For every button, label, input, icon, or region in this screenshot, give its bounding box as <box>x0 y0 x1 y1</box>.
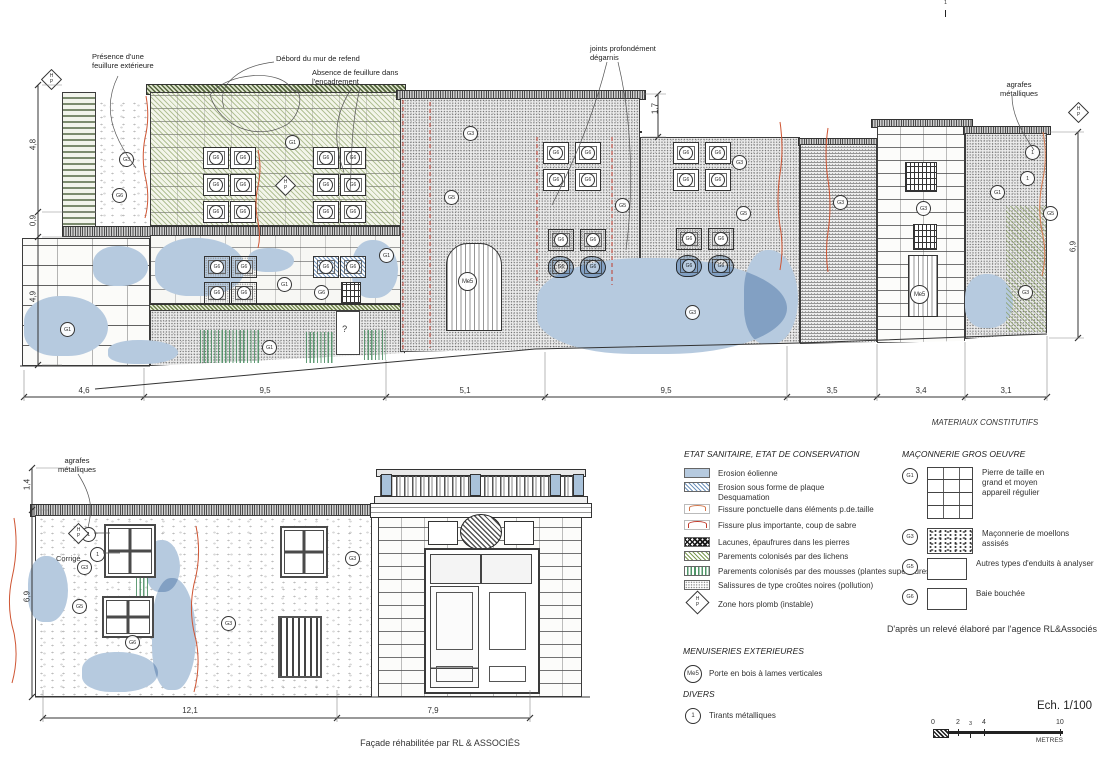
code-marker: G1 <box>277 277 292 292</box>
code-marker: Me5 <box>910 285 929 304</box>
code-marker: G5 <box>1043 206 1058 221</box>
facade-caption: Façade réhabilitée par RL & ASSOCIÉS <box>320 738 560 748</box>
legend-swatch <box>684 551 710 561</box>
dimension-label: 1,4 <box>23 470 32 500</box>
legend-swatch <box>684 566 710 576</box>
legend-hp-label: Zone hors plomb (instable) <box>718 600 813 610</box>
material-code-circle: G5 <box>902 559 918 575</box>
scale-tick: 2 <box>956 719 960 726</box>
legend-item-label: Maçonnerie de moellons assisés <box>982 529 1069 549</box>
code-marker: G3 <box>119 152 134 167</box>
legend-item-label: Erosion éolienne <box>718 469 778 479</box>
code-marker: G6 <box>112 188 127 203</box>
dimension-label: 3,5 <box>817 386 847 395</box>
door-transom <box>430 554 532 584</box>
scale-unit: METRES <box>1000 737 1063 744</box>
callout-note: agrafes métalliques <box>1000 80 1038 98</box>
legend-item: Fissure plus importante, coup de sabre <box>684 520 856 531</box>
code-marker: G1 <box>990 185 1005 200</box>
legend-swatch <box>684 520 710 530</box>
legend-item: G6 Baie bouchée <box>902 588 1025 610</box>
code-marker: G1 <box>379 248 394 263</box>
code-marker: G5 <box>615 198 630 213</box>
code-marker: G3 <box>345 551 360 566</box>
legend-etat-title: ETAT SANITAIRE, ETAT DE CONSERVATION <box>684 449 860 459</box>
legend-swatch <box>684 504 710 514</box>
code-marker: 1 <box>1025 145 1040 160</box>
material-swatch-box <box>927 467 973 519</box>
code-marker: G1 <box>262 340 277 355</box>
hors-plomb-diamond: HP <box>42 70 61 89</box>
code-marker: 1 <box>90 547 105 562</box>
legend-item: Parements colonisés par des mousses (pla… <box>684 566 933 577</box>
tirant-code-circle: 1 <box>685 708 701 724</box>
dimension-label: 1,7 <box>651 94 660 124</box>
legend-swatch <box>684 468 710 478</box>
dimension-label: 4,8 <box>29 130 38 160</box>
legend-item: Salissures de type croûtes noires (pollu… <box>684 580 873 591</box>
legend-item: G5 Autres types d'enduits à analyser <box>902 558 1094 580</box>
legend-swatch <box>684 580 710 590</box>
material-code-circle: G3 <box>902 529 918 545</box>
legend-maconnerie-title: MAÇONNERIE GROS OEUVRE <box>902 449 1025 459</box>
scale-label: Ech. 1/100 <box>1000 700 1092 712</box>
legend-item-label: Pierre de taille en grand et moyen appar… <box>982 468 1044 498</box>
dimension-label: 3,4 <box>906 386 936 395</box>
legend-item: G3 Maçonnerie de moellons assisés <box>902 528 1069 554</box>
legend-item-label: Tirants métalliques <box>709 711 776 721</box>
scale-bar-hatch <box>933 729 949 738</box>
scale-tick: 0 <box>931 719 935 726</box>
material-code-circle: G1 <box>902 468 918 484</box>
material-swatch-box <box>927 528 973 554</box>
door-panel-l1 <box>436 592 473 650</box>
dimension-label: 6,9 <box>23 582 32 612</box>
baluster-post <box>573 474 584 496</box>
legend-swatch <box>684 482 710 492</box>
hors-plomb-diamond: HP <box>69 524 88 543</box>
legend-item-label: Parements colonisés par des mousses (pla… <box>718 567 933 577</box>
legend-item: Erosion sous forme de plaque Desquamatio… <box>684 482 824 503</box>
legend-item-label: Salissures de type croûtes noires (pollu… <box>718 581 873 591</box>
legend-swatch <box>684 537 710 547</box>
dimension-label: 6,9 <box>1069 232 1078 262</box>
code-marker: G3 <box>732 155 747 170</box>
callout-note: Présence d'une feuillure extérieure <box>92 52 154 70</box>
legend-item-label: Parements colonisés par des lichens <box>718 552 848 562</box>
baluster-post <box>470 474 481 496</box>
me5-code-circle: Me5 <box>684 665 702 683</box>
hors-plomb-diamond: HP <box>276 176 295 195</box>
callout-note: Absence de feuillure dans l'encadrement <box>312 68 398 86</box>
legend-divers-item: 1 Tirants métalliques <box>685 707 776 724</box>
legend-item: Parements colonisés par des lichens <box>684 551 848 562</box>
callout-note: agrafes métalliques <box>58 456 96 474</box>
code-marker: G3 <box>463 126 478 141</box>
material-code-circle: G6 <box>902 589 918 605</box>
code-marker: G6 <box>314 285 329 300</box>
dimension-label: 0,9 <box>29 206 38 236</box>
legend-item: Lacunes, épaufrures dans les pierres <box>684 537 850 548</box>
credit-note: D'après un relevé élaboré par l'agence R… <box>845 624 1097 634</box>
callout-note: Débord du mur de refend <box>276 54 360 63</box>
scale-tick: 4 <box>982 719 986 726</box>
code-marker: G1 <box>60 322 75 337</box>
materiaux-title: MATERIAUX CONSTITUTIFS <box>900 418 1070 427</box>
legend-item: Fissure ponctuelle dans éléments p.de.ta… <box>684 504 874 515</box>
hors-plomb-legend-icon: HP <box>687 592 708 613</box>
corrige-note: Corrigé <box>56 554 81 563</box>
material-swatch-box <box>927 558 967 580</box>
scale-bar <box>933 731 1063 734</box>
scale-tick: 3 <box>969 721 972 727</box>
dimension-label: 12,1 <box>175 706 205 715</box>
dimension-label: 4,9 <box>29 282 38 312</box>
dimension-label: 5,1 <box>450 386 480 395</box>
hors-plomb-diamond: HP <box>1069 103 1088 122</box>
code-marker: G6 <box>125 635 140 650</box>
legend-item-label: Baie bouchée <box>976 589 1025 599</box>
baluster-post <box>550 474 561 496</box>
code-marker: G3 <box>685 305 700 320</box>
legend-item-label: Fissure plus importante, coup de sabre <box>718 521 856 531</box>
code-marker: G5 <box>736 206 751 221</box>
code-marker: G3 <box>833 195 848 210</box>
legend-item: G1 Pierre de taille en grand et moyen ap… <box>902 467 1044 519</box>
code-marker: Me5 <box>458 272 477 291</box>
door-panel-r2 <box>489 666 526 682</box>
code-marker: G3 <box>916 201 931 216</box>
dimension-label: 4,6 <box>69 386 99 395</box>
baluster-post <box>381 474 392 496</box>
dimension-label: 9,5 <box>651 386 681 395</box>
code-marker: ? <box>338 322 351 335</box>
door-panel-r1 <box>489 592 526 650</box>
legend-item: Erosion éolienne <box>684 468 778 479</box>
code-marker: G3 <box>1018 285 1033 300</box>
code-marker: G5 <box>444 190 459 205</box>
legend-item-label: Fissure ponctuelle dans éléments p.de.ta… <box>718 505 874 515</box>
scale-tick: 10 <box>1056 719 1064 726</box>
dimension-label: 7,9 <box>418 706 448 715</box>
code-marker: 1 <box>1020 171 1035 186</box>
legend-item-label: Porte en bois à lames verticales <box>709 669 822 679</box>
architectural-sheet: G6G6G6G6G6G6G6G6G6G6G6G6G6G6G6G6G6G6G6G6… <box>0 0 1100 780</box>
legend-menuiseries-title: MENUISERIES EXTERIEURES <box>683 646 804 656</box>
legend-divers-title: DIVERS <box>683 689 715 699</box>
scale-tick: 1 <box>944 0 947 6</box>
door-panel-l2 <box>436 666 473 682</box>
dimension-label: 3,1 <box>991 386 1021 395</box>
dimension-label: 9,5 <box>250 386 280 395</box>
legend-item-label: Lacunes, épaufrures dans les pierres <box>718 538 850 548</box>
code-marker: G5 <box>72 599 87 614</box>
material-swatch-box <box>927 588 967 610</box>
code-marker: G1 <box>285 135 300 150</box>
legend-item-label: Erosion sous forme de plaque Desquamatio… <box>718 483 824 503</box>
code-marker: G3 <box>221 616 236 631</box>
callout-note: joints profondément dégarnis <box>590 44 656 62</box>
legend-menuiseries-item: Me5 Porte en bois à lames verticales <box>684 664 822 683</box>
legend-item-label: Autres types d'enduits à analyser <box>976 559 1094 569</box>
